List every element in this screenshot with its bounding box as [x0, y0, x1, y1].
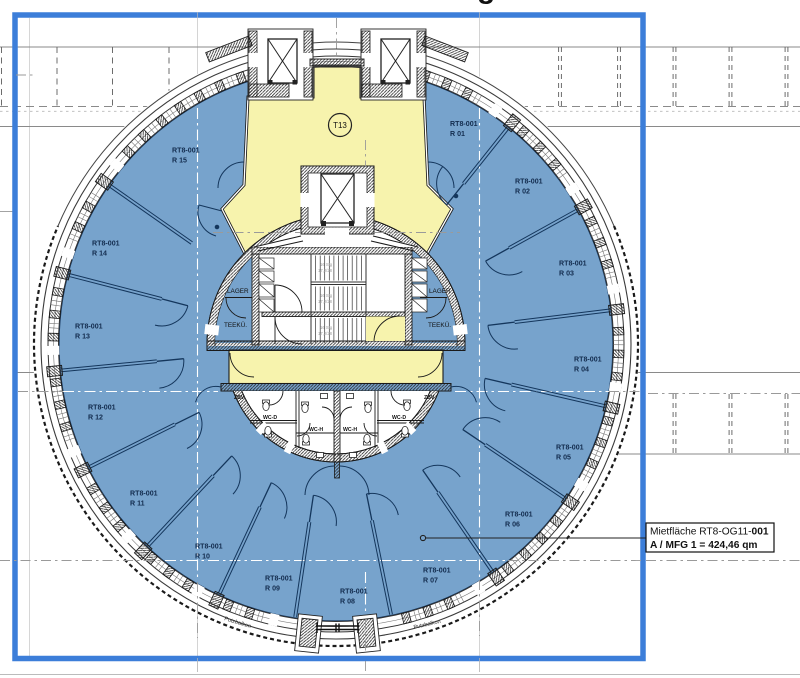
svg-text:R 09: R 09	[265, 585, 280, 593]
svg-text:WC-D: WC-D	[263, 415, 277, 421]
svg-text:R 03: R 03	[559, 270, 574, 278]
svg-text:ZBV: ZBV	[234, 395, 245, 401]
svg-text:RT8-001: RT8-001	[92, 240, 120, 248]
svg-text:17,2/28: 17,2/28	[318, 299, 333, 304]
svg-text:R 11: R 11	[130, 500, 145, 508]
svg-text:R 06: R 06	[505, 521, 520, 529]
svg-text:R 14: R 14	[92, 250, 107, 258]
svg-text:T13: T13	[333, 121, 347, 130]
svg-text:RT8-001: RT8-001	[75, 323, 103, 331]
svg-text:RT8-001: RT8-001	[88, 404, 116, 412]
svg-text:16 Stg: 16 Stg	[320, 262, 333, 267]
svg-text:RT8-001: RT8-001	[505, 511, 533, 519]
svg-text:R 02: R 02	[515, 188, 530, 196]
svg-text:16 Stg: 16 Stg	[320, 325, 333, 330]
svg-text:16 Stg: 16 Stg	[320, 293, 333, 298]
svg-text:WC-D: WC-D	[392, 415, 406, 421]
svg-text:R 12: R 12	[88, 414, 103, 422]
svg-text:A / MFG 1 = 424,46 qm: A / MFG 1 = 424,46 qm	[650, 540, 757, 551]
svg-text:R 01: R 01	[450, 130, 465, 138]
svg-text:RT8-001: RT8-001	[195, 543, 223, 551]
svg-text:WC-H: WC-H	[309, 427, 323, 433]
svg-text:RT8-001: RT8-001	[340, 588, 368, 596]
svg-text:R 10: R 10	[195, 553, 210, 561]
svg-text:17,2/28: 17,2/28	[318, 331, 333, 336]
svg-text:RT8-001: RT8-001	[265, 575, 293, 583]
svg-text:WC-H: WC-H	[343, 427, 357, 433]
svg-text:Mietfläche RT8-OG11-001: Mietfläche RT8-OG11-001	[650, 527, 769, 538]
svg-text:RT8-001: RT8-001	[559, 260, 587, 268]
svg-text:R 08: R 08	[340, 598, 355, 606]
svg-text:R 13: R 13	[75, 333, 90, 341]
svg-text:TEEKÜ.: TEEKÜ.	[224, 321, 247, 329]
svg-text:RT8-001: RT8-001	[450, 120, 478, 128]
svg-text:TEEKÜ.: TEEKÜ.	[428, 321, 451, 329]
svg-text:17,2/28: 17,2/28	[318, 268, 333, 273]
svg-text:R 15: R 15	[172, 157, 187, 165]
svg-text:R 07: R 07	[423, 577, 438, 585]
svg-text:RT8-001: RT8-001	[515, 178, 543, 186]
svg-text:g: g	[477, 0, 495, 5]
svg-text:R 04: R 04	[574, 366, 589, 374]
svg-text:RT8-001: RT8-001	[574, 356, 602, 364]
svg-text:RT8-001: RT8-001	[423, 567, 451, 575]
svg-text:RT8-001: RT8-001	[130, 490, 158, 498]
svg-text:ZBV: ZBV	[424, 395, 435, 401]
svg-text:R 05: R 05	[556, 454, 571, 462]
svg-text:RT8-001: RT8-001	[172, 147, 200, 155]
svg-text:LAGER: LAGER	[429, 288, 451, 295]
svg-text:RT8-001: RT8-001	[556, 444, 584, 452]
svg-text:LAGER: LAGER	[227, 288, 249, 295]
